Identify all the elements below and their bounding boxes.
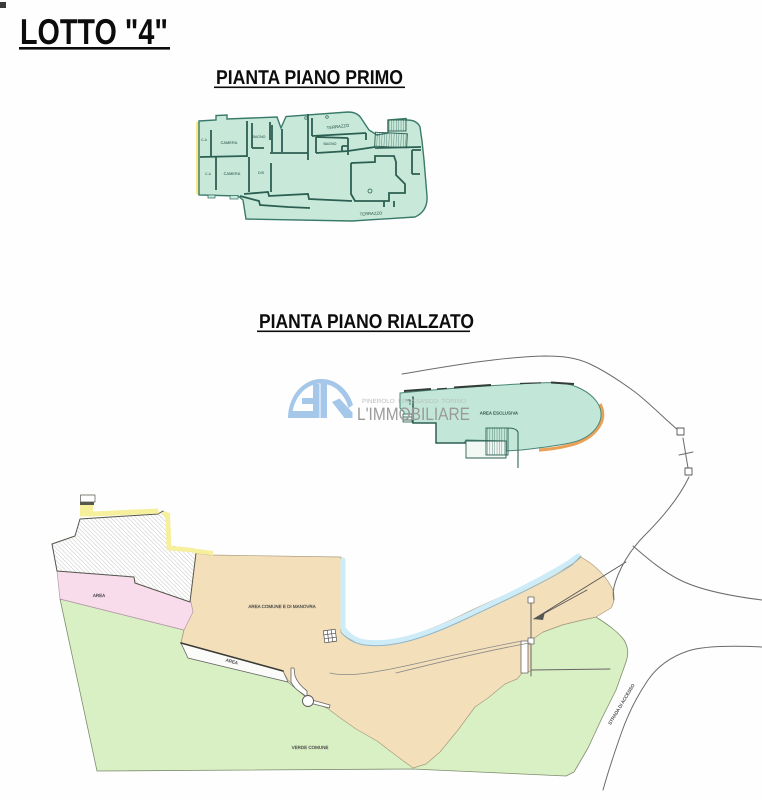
svg-text:BAGNO: BAGNO [253, 135, 266, 139]
svg-text:PIANTA PIANO PRIMO: PIANTA PIANO PRIMO [216, 67, 403, 89]
svg-text:DIS: DIS [258, 171, 265, 175]
svg-text:PIANTA PIANO RIALZATO: PIANTA PIANO RIALZATO [259, 311, 474, 333]
svg-text:C.A: C.A [201, 138, 207, 142]
svg-text:L'IMMOBILIARE: L'IMMOBILIARE [357, 404, 470, 424]
svg-text:C.A: C.A [205, 172, 211, 176]
svg-text:LOTTO "4": LOTTO "4" [20, 11, 168, 52]
svg-text:CAMERA: CAMERA [221, 140, 238, 145]
svg-text:AREA ESCLUSIVA: AREA ESCLUSIVA [480, 411, 518, 416]
svg-text:AREA COMUNE E DI MANOVRA: AREA COMUNE E DI MANOVRA [248, 604, 315, 609]
svg-text:AREA: AREA [93, 593, 105, 598]
svg-text:VERDE COMUNE: VERDE COMUNE [292, 745, 329, 750]
svg-text:CAMERA: CAMERA [224, 171, 241, 176]
svg-text:BAGNO: BAGNO [324, 142, 337, 146]
